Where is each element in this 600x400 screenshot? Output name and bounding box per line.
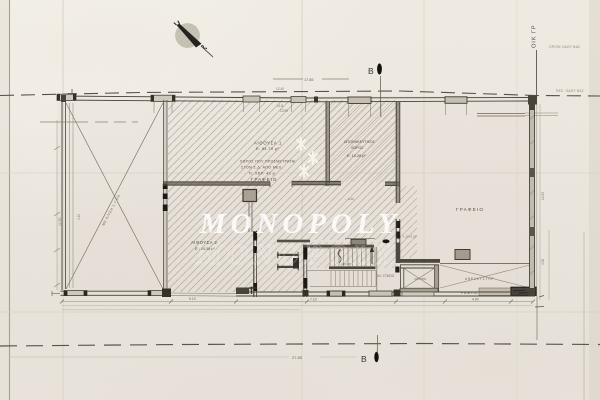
svg-text:ΟΡΙΟΝ ΟΔΟΥ ΒΑΣ: ΟΡΙΟΝ ΟΔΟΥ ΒΑΣ bbox=[549, 45, 580, 49]
svg-text:ΑΠΟΘΗΚΕΥΤΙΚΟΣ: ΑΠΟΘΗΚΕΥΤΙΚΟΣ bbox=[344, 140, 376, 144]
svg-text:→ 0.60: → 0.60 bbox=[344, 197, 354, 201]
svg-text:ΛΟΥΤΡΟ: ΛΟΥΤΡΟ bbox=[414, 277, 427, 281]
svg-text:MONOPOLY: MONOPOLY bbox=[199, 208, 401, 240]
svg-text:Ε: 84.70 μ²: Ε: 84.70 μ² bbox=[256, 147, 279, 151]
svg-text:ΓΡΑΦΕΙΟ: ΓΡΑΦΕΙΟ bbox=[456, 207, 484, 212]
svg-text:4.00: 4.00 bbox=[472, 298, 479, 302]
svg-text:ΧΩΡΟΣ: ΧΩΡΟΣ bbox=[351, 146, 364, 150]
svg-text:4.10: 4.10 bbox=[77, 214, 81, 220]
svg-text:7.10: 7.10 bbox=[310, 298, 317, 302]
svg-text:4.50: 4.50 bbox=[541, 259, 545, 265]
svg-text:B: B bbox=[361, 354, 367, 364]
svg-text:17.85: 17.85 bbox=[304, 78, 314, 82]
svg-text:ΓΡΑΦΕΙΟ: ΓΡΑΦΕΙΟ bbox=[251, 177, 277, 182]
svg-text:B: B bbox=[368, 66, 374, 76]
svg-text:MONOPOLY: MONOPOLY bbox=[195, 239, 397, 271]
svg-text:27.85: 27.85 bbox=[292, 355, 303, 360]
svg-text:9.10: 9.10 bbox=[189, 297, 196, 301]
svg-text:12.40: 12.40 bbox=[276, 87, 284, 91]
svg-text:ΚΛ. ΣΤΑΣΙΟ: ΚΛ. ΣΤΑΣΙΟ bbox=[377, 274, 395, 278]
svg-text:13.99: 13.99 bbox=[280, 109, 288, 113]
svg-text:ΑΙΘΟΥΣΑ 1: ΑΙΘΟΥΣΑ 1 bbox=[254, 141, 282, 146]
svg-text:ΠΕΖ. ΟΔΟΥ ΒΑΣ: ΠΕΖ. ΟΔΟΥ ΒΑΣ bbox=[556, 89, 584, 93]
svg-text:ΣΤΟΝ Σ.Δ. ΑΠΟ ΜΕΛ.: ΣΤΟΝ Σ.Δ. ΑΠΟ ΜΕΛ. bbox=[241, 166, 283, 170]
svg-text:ΟΙΚ ΓΡ: ΟΙΚ ΓΡ bbox=[532, 25, 538, 48]
svg-text:Π. ΧΩΡ. 42 μ: Π. ΧΩΡ. 42 μ bbox=[249, 172, 275, 176]
svg-text:Ε: 15.28 μ²: Ε: 15.28 μ² bbox=[347, 154, 366, 158]
svg-text:10.50: 10.50 bbox=[58, 217, 62, 226]
svg-text:ΑΝΕΛΚΥΣΤΗΡ: ΑΝΕΛΚΥΣΤΗΡ bbox=[465, 277, 494, 281]
svg-text:14.50: 14.50 bbox=[541, 192, 545, 200]
svg-text:11.8: 11.8 bbox=[277, 104, 283, 108]
svg-text:ΧΩΡΟΣ ΠΟΥ ΠΡΟΣΜΕΤΡΑΤΑΙ: ΧΩΡΟΣ ΠΟΥ ΠΡΟΣΜΕΤΡΑΤΑΙ bbox=[240, 160, 296, 164]
svg-text:1.10×2.20: 1.10×2.20 bbox=[403, 235, 417, 239]
